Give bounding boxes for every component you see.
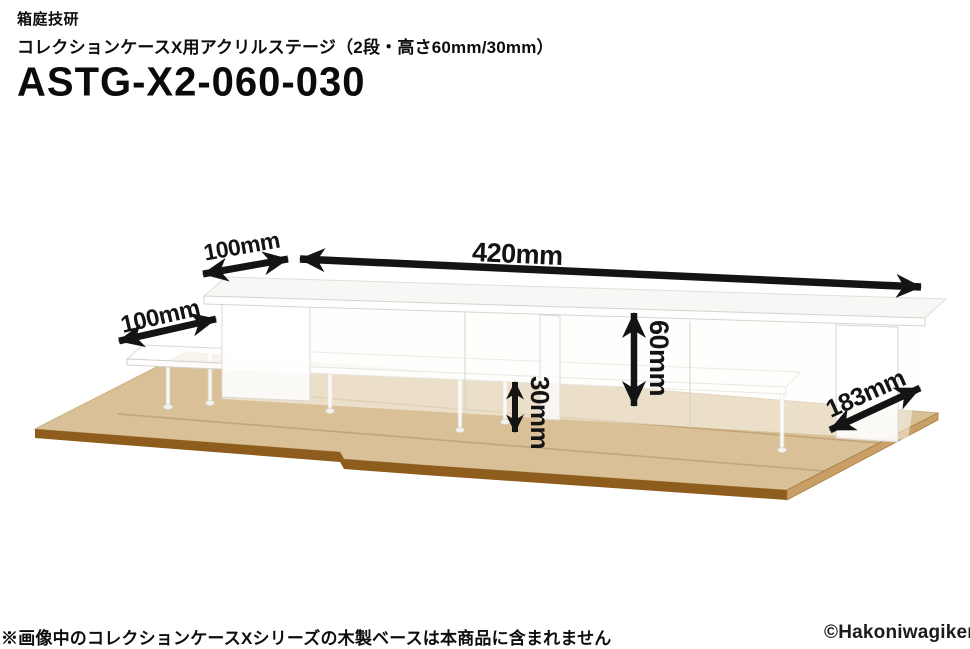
upper-left-wall: [222, 304, 310, 401]
dim-label-lower-height: 30mm: [525, 376, 555, 449]
disclaimer-note: ※画像中のコレクションケースXシリーズの木製ベースは本商品に含まれません: [1, 624, 611, 649]
dim-label-width: 420mm: [471, 237, 563, 271]
product-sheet: { "header": { "brand": "箱庭技研", "subtitle…: [0, 0, 970, 647]
product-illustration: 100mm 420mm 100mm 60mm 30mm 183mm: [0, 0, 970, 647]
copyright: ©Hakoniwagiken: [824, 622, 970, 644]
dim-label-upper-height: 60mm: [644, 320, 674, 396]
